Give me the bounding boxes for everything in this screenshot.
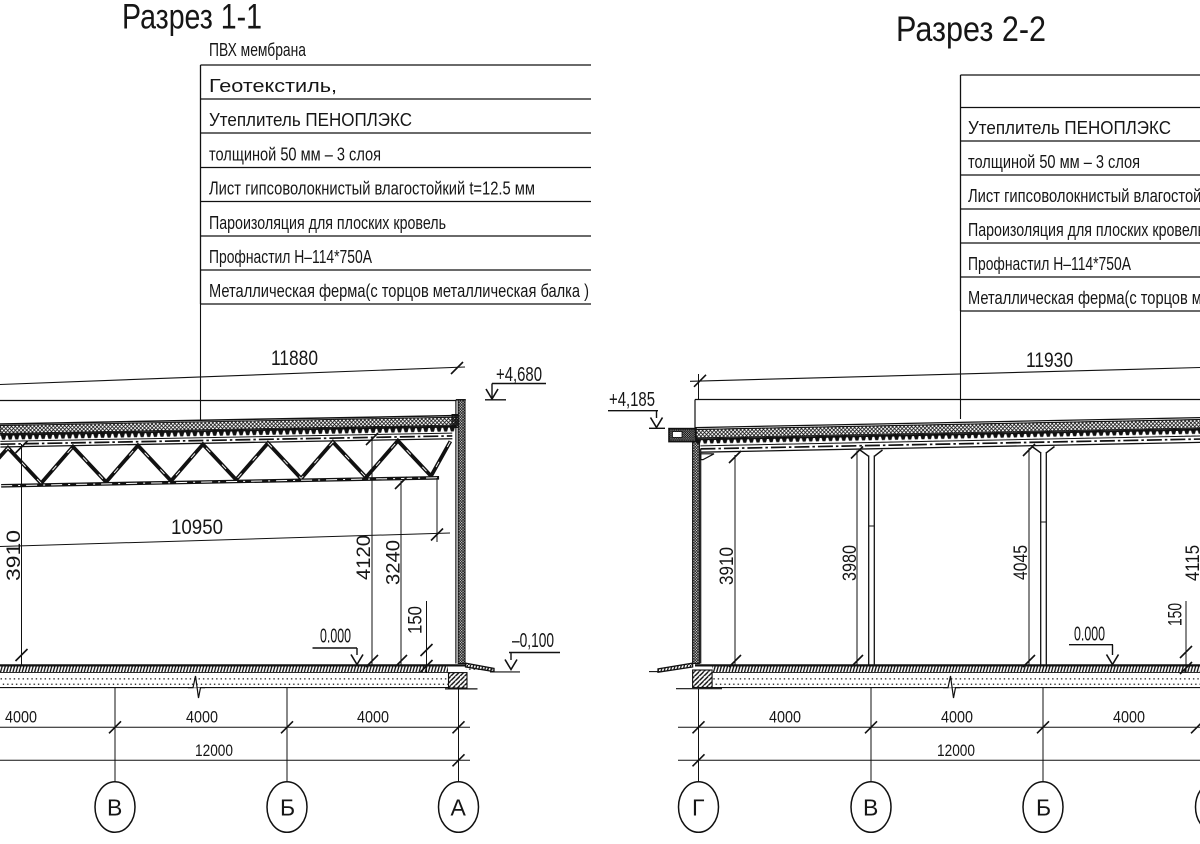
svg-text:–0,100: –0,100 (512, 630, 554, 652)
svg-text:Б: Б (280, 795, 295, 821)
svg-text:Профнастил Н–114*750А: Профнастил Н–114*750А (209, 247, 372, 267)
svg-text:В: В (863, 795, 878, 821)
svg-text:Лист гипсоволокнистый влагосто: Лист гипсоволокнистый влагостойкий t=12.… (968, 186, 1200, 206)
svg-text:0.000: 0.000 (320, 626, 351, 648)
svg-text:Металлическая ферма(с торцов м: Металлическая ферма(с торцов металлическ… (209, 281, 589, 301)
svg-text:Металлическая ферма(с торцов м: Металлическая ферма(с торцов металлическ… (968, 288, 1200, 308)
svg-text:Пароизоляция для плоских крове: Пароизоляция для плоских кровель (968, 220, 1200, 240)
svg-text:Геотекстиль,: Геотекстиль, (209, 76, 337, 96)
svg-text:11880: 11880 (271, 347, 318, 370)
svg-text:4000: 4000 (769, 708, 801, 727)
svg-text:11930: 11930 (1026, 349, 1073, 372)
svg-text:Разрез 1-1: Разрез 1-1 (122, 0, 262, 37)
svg-text:Утеплитель ПЕНОПЛЭКС: Утеплитель ПЕНОПЛЭКС (968, 118, 1171, 138)
svg-text:12000: 12000 (195, 741, 233, 760)
svg-text:Лист гипсоволокнистый влагосто: Лист гипсоволокнистый влагостойкий t=12.… (209, 179, 535, 199)
svg-text:+4,680: +4,680 (496, 364, 542, 386)
svg-text:3910: 3910 (717, 547, 738, 585)
svg-text:12000: 12000 (937, 741, 975, 760)
svg-text:4000: 4000 (5, 708, 37, 727)
svg-text:4120: 4120 (354, 535, 375, 580)
svg-text:4000: 4000 (357, 708, 389, 727)
svg-text:3240: 3240 (384, 540, 405, 585)
svg-text:4000: 4000 (186, 708, 218, 727)
svg-text:Утеплитель ПЕНОПЛЭКС: Утеплитель ПЕНОПЛЭКС (209, 110, 412, 130)
svg-text:0.000: 0.000 (1074, 624, 1105, 646)
svg-text:ПВХ мембрана: ПВХ мембрана (209, 40, 307, 60)
svg-text:150: 150 (1166, 603, 1187, 626)
svg-text:4045: 4045 (1011, 545, 1032, 580)
svg-text:Профнастил Н–114*750А: Профнастил Н–114*750А (968, 254, 1131, 274)
svg-text:Б: Б (1036, 795, 1051, 821)
svg-text:В: В (107, 795, 122, 821)
svg-text:толщиной 50 мм – 3 слоя: толщиной 50 мм – 3 слоя (968, 152, 1140, 172)
svg-text:150: 150 (406, 606, 427, 634)
svg-text:+4,185: +4,185 (609, 389, 655, 411)
svg-text:Г: Г (692, 795, 705, 821)
svg-text:4115: 4115 (1183, 545, 1200, 581)
svg-text:3910: 3910 (4, 530, 25, 581)
svg-text:10950: 10950 (171, 516, 223, 539)
svg-text:4000: 4000 (941, 708, 973, 727)
svg-text:3980: 3980 (840, 545, 861, 581)
svg-text:А: А (451, 795, 467, 821)
svg-text:Пароизоляция для плоских крове: Пароизоляция для плоских кровель (209, 213, 446, 233)
svg-text:Разрез 2-2: Разрез 2-2 (896, 10, 1046, 49)
svg-text:толщиной 50 мм – 3 слоя: толщиной 50 мм – 3 слоя (209, 145, 381, 165)
svg-text:4000: 4000 (1113, 708, 1145, 727)
